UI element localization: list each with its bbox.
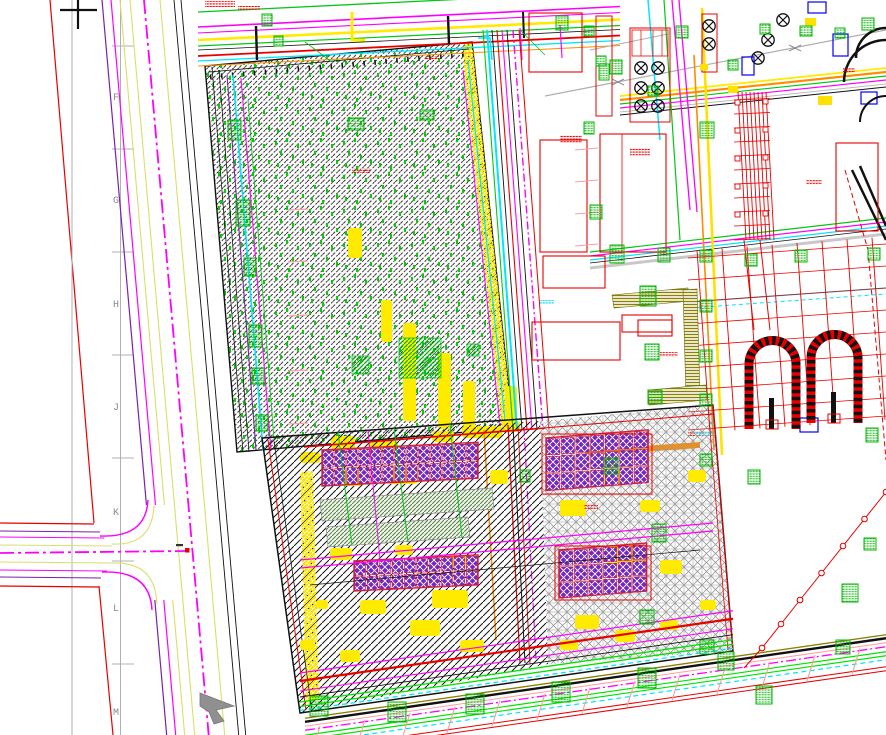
grid-line-h xyxy=(688,266,886,280)
road-corner-curve xyxy=(100,500,148,536)
module-cell xyxy=(443,445,453,461)
grid-letter-l: L xyxy=(113,604,119,615)
annotation-text-red xyxy=(584,505,598,509)
rack-column xyxy=(763,211,768,216)
module-cell xyxy=(634,467,647,483)
module-cell xyxy=(547,439,560,455)
fence-circle-marker xyxy=(778,621,784,627)
equipment-tag xyxy=(556,16,568,30)
cad-drawing[interactable]: F G H J K L M xyxy=(0,0,886,735)
equipment-tag xyxy=(640,286,656,306)
yellow-blob xyxy=(340,650,360,662)
module-cell xyxy=(574,550,587,564)
module-cell xyxy=(431,463,441,479)
micro-annotation xyxy=(176,544,183,546)
equipment-tag xyxy=(835,28,845,38)
equipment-tag xyxy=(866,428,878,442)
module-cell xyxy=(371,448,381,464)
module-cell xyxy=(589,564,602,578)
annotation-text-red xyxy=(806,180,822,185)
yellow-blob xyxy=(432,590,468,608)
module-cell xyxy=(429,573,440,586)
equipment-tag xyxy=(700,640,714,654)
pipe-rack-line xyxy=(750,92,758,240)
blue-junction-box xyxy=(808,2,826,13)
module-cell xyxy=(561,455,574,471)
grid-letter-j: J xyxy=(113,403,119,414)
building-outline xyxy=(540,140,587,252)
tank-cell-grid xyxy=(632,30,668,56)
yellow-blob xyxy=(460,640,484,652)
module-cell xyxy=(574,566,587,580)
equipment-tag xyxy=(700,394,712,406)
yellow-box xyxy=(700,64,708,70)
module-cell xyxy=(442,557,453,570)
side-road-edge xyxy=(0,562,115,563)
arrow-cursor xyxy=(200,693,234,724)
yellow-pipe-elbow xyxy=(352,12,365,40)
module-cell xyxy=(380,561,391,574)
road-edge xyxy=(164,600,176,735)
equipment-tag xyxy=(868,248,880,260)
pipe-line-top xyxy=(198,30,620,51)
side-road-edge xyxy=(0,570,107,571)
fence-circle-marker xyxy=(819,570,825,576)
module-cell xyxy=(620,450,633,466)
module-cell xyxy=(547,474,560,490)
yellow-blob xyxy=(660,560,682,574)
equipment-tag xyxy=(700,250,712,262)
yellow-blob xyxy=(360,600,386,614)
building-outline xyxy=(638,320,672,336)
equipment-tag xyxy=(236,200,250,226)
module-cell xyxy=(359,449,369,465)
furnace-1-stem xyxy=(769,398,774,429)
side-road-edge xyxy=(0,586,99,587)
module-cell xyxy=(455,444,465,460)
module-cell xyxy=(380,576,391,589)
module-cell xyxy=(455,462,465,478)
tank-cross xyxy=(637,64,646,73)
module-cell xyxy=(605,434,618,450)
pipe-rack-line xyxy=(746,92,754,240)
rack-column xyxy=(763,127,768,132)
equipment-tag xyxy=(676,26,688,38)
module-cell xyxy=(604,579,617,593)
equipment-tag xyxy=(584,26,594,36)
pipe-rack-line xyxy=(758,92,766,240)
grid-letter-m: M xyxy=(113,708,119,719)
module-cell xyxy=(620,468,633,484)
cyan-pipe-dashed xyxy=(690,294,886,308)
annotation-text-red xyxy=(205,1,235,7)
pipe-rack-line xyxy=(738,92,746,240)
module-cell xyxy=(560,583,573,597)
pipe-rack-rung xyxy=(734,225,770,227)
equipment-tag xyxy=(652,524,666,542)
road-centerline xyxy=(144,0,209,735)
rack-column xyxy=(763,155,768,160)
module-cell xyxy=(442,572,453,585)
grid-letter-k: K xyxy=(113,508,119,519)
equipment-tag xyxy=(256,415,268,431)
module-cell xyxy=(392,560,403,573)
module-cell xyxy=(367,576,378,589)
road-edge xyxy=(155,600,167,735)
module-cell xyxy=(417,559,428,572)
yellow-blob xyxy=(330,548,352,560)
yellow-blob xyxy=(348,228,362,258)
yellow-blob xyxy=(316,600,328,609)
grid-letter-h: H xyxy=(113,300,119,311)
equipment-tag xyxy=(760,24,770,34)
module-cell xyxy=(604,547,617,561)
rack-column xyxy=(735,156,740,161)
cad-viewport[interactable]: F G H J K L M xyxy=(0,0,886,735)
module-cell xyxy=(618,578,631,592)
furnace-2-stem xyxy=(831,392,836,423)
annotation-text-red xyxy=(390,480,404,484)
equipment-tag xyxy=(700,122,714,138)
rack-column xyxy=(735,184,740,189)
east-plant-area xyxy=(529,0,886,460)
annotation-text-red xyxy=(630,148,650,156)
side-road-edge xyxy=(0,577,101,578)
tank-cross xyxy=(764,36,773,45)
equipment-tag xyxy=(864,538,876,550)
annotation-text-red xyxy=(425,56,439,60)
module-cell xyxy=(407,465,417,481)
equipment-tag xyxy=(645,344,659,360)
crosshair-cursor xyxy=(60,0,97,29)
yellow-blob xyxy=(300,640,314,650)
black-stub xyxy=(256,26,257,60)
fence-circle-marker xyxy=(840,543,846,549)
module-cell xyxy=(591,435,604,451)
yellow-blob xyxy=(575,615,599,629)
road-edge xyxy=(130,0,195,735)
yellow-blob xyxy=(381,300,392,342)
module-cell xyxy=(359,467,369,483)
equipment-tag xyxy=(252,368,264,384)
tank-cross xyxy=(705,22,714,31)
module-cell xyxy=(547,456,560,472)
annotation-text-red xyxy=(352,168,370,173)
building-outline xyxy=(622,315,672,332)
module-cell xyxy=(589,548,602,562)
yellow-blob xyxy=(700,600,716,610)
equipment-tag xyxy=(718,652,734,670)
pipe-rack-line xyxy=(754,92,762,240)
module-cell xyxy=(634,449,647,465)
grid-line-v xyxy=(722,248,735,430)
module-cell xyxy=(404,559,415,572)
equipment-tag xyxy=(756,686,772,704)
building-outline xyxy=(836,143,878,231)
module-cell xyxy=(560,551,573,565)
equipment-tag xyxy=(648,86,658,96)
module-cell xyxy=(633,561,646,575)
equipment-tag xyxy=(638,668,656,688)
equipment-tag xyxy=(800,26,812,36)
yellow-box xyxy=(805,18,816,26)
equipment-tag xyxy=(842,584,858,602)
north-parcel-hatch xyxy=(205,42,520,463)
grid-line-v xyxy=(872,238,885,420)
road-edge xyxy=(102,0,146,505)
equipment-tag xyxy=(596,56,606,66)
module-cell xyxy=(467,444,477,460)
equipment-tag xyxy=(388,702,406,722)
tank-cross xyxy=(779,16,788,25)
grid-line-h xyxy=(688,288,886,302)
black-pipe-arc xyxy=(860,96,886,122)
module-cell xyxy=(383,466,393,482)
equipment-tag xyxy=(274,36,283,46)
equipment-tag xyxy=(648,390,662,404)
module-cell xyxy=(323,451,333,467)
side-road-centerline xyxy=(0,551,186,553)
module-cell xyxy=(560,567,573,581)
module-cell xyxy=(355,562,366,575)
centerline-end-marker xyxy=(185,548,190,553)
module-cell xyxy=(633,577,646,591)
yellow-blob xyxy=(640,500,660,512)
equipment-tag xyxy=(745,254,757,266)
cyan-riser xyxy=(648,0,660,140)
grid-line-h xyxy=(688,310,886,324)
green-square xyxy=(467,344,479,356)
module-cell xyxy=(620,433,633,449)
fence-circle-marker xyxy=(862,516,868,522)
equipment-tag xyxy=(228,120,241,140)
module-cell xyxy=(574,582,587,596)
module-cell xyxy=(576,436,589,452)
side-road-edge xyxy=(0,545,112,546)
module-cell xyxy=(431,445,441,461)
module-cell xyxy=(417,574,428,587)
equipment-tag xyxy=(836,640,850,654)
module-cell xyxy=(633,545,646,559)
tank-cross xyxy=(654,64,663,73)
rack-column xyxy=(763,99,768,104)
rack-column xyxy=(763,183,768,188)
tank-cross xyxy=(705,40,714,49)
rack-column xyxy=(735,128,740,133)
module-cell xyxy=(466,556,477,569)
module-cell xyxy=(443,463,453,479)
yellow-box xyxy=(818,96,832,105)
equipment-tag xyxy=(244,258,256,276)
module-cell xyxy=(618,546,631,560)
grid-letter-f: F xyxy=(113,93,119,104)
module-cell xyxy=(467,462,477,478)
side-road-edge xyxy=(0,531,100,532)
fence-circle-marker xyxy=(797,597,803,603)
equipment-tag xyxy=(584,122,594,134)
equipment-tag xyxy=(520,470,530,482)
property-line-red xyxy=(99,586,113,735)
equipment-tag xyxy=(700,454,712,466)
module-cell xyxy=(335,450,345,466)
equipment-tag xyxy=(700,300,712,312)
equipment-tag xyxy=(310,696,328,716)
module-cell xyxy=(454,557,465,570)
building-outline xyxy=(543,256,605,288)
equipment-tag xyxy=(640,610,654,624)
pipe-rack-line xyxy=(762,92,770,240)
module-cell xyxy=(604,563,617,577)
yellow-box xyxy=(728,86,738,93)
module-cell xyxy=(407,447,417,463)
annotation-text-red xyxy=(843,68,855,72)
pipe-rack-line xyxy=(766,92,774,240)
module-cell xyxy=(367,561,378,574)
pipe-rack-line xyxy=(742,92,750,240)
olive-band xyxy=(683,289,700,397)
module-cell xyxy=(589,580,602,594)
module-cell xyxy=(419,464,429,480)
module-cell xyxy=(454,572,465,585)
module-cell xyxy=(383,448,393,464)
module-cell xyxy=(419,446,429,462)
module-cell xyxy=(429,558,440,571)
rack-column xyxy=(735,100,740,105)
equipment-tag xyxy=(466,694,484,714)
yellow-blob xyxy=(490,470,508,484)
module-cell xyxy=(561,473,574,489)
equipment-tag xyxy=(262,14,272,26)
module-cell xyxy=(576,454,589,470)
equipment-tag xyxy=(604,458,618,474)
yellow-blob xyxy=(410,620,440,636)
equipment-tag xyxy=(748,470,760,484)
side-road-edge xyxy=(0,523,94,524)
equipment-tag xyxy=(658,248,670,262)
equipment-tag xyxy=(862,18,874,30)
equipment-tag xyxy=(420,110,434,120)
equipment-tag xyxy=(795,250,807,262)
annotation-text-cyan xyxy=(540,300,554,304)
yellow-blob xyxy=(560,500,586,516)
green-square xyxy=(352,356,369,374)
module-cell xyxy=(618,562,631,576)
annotation-text-red xyxy=(238,6,260,11)
equipment-tag xyxy=(249,325,262,347)
fence-circle-marker xyxy=(759,645,765,651)
module-cell xyxy=(576,471,589,487)
pipe-line-east xyxy=(590,229,886,263)
bowtie-symbol xyxy=(612,79,624,85)
green-square xyxy=(424,359,439,374)
equipment-tag xyxy=(700,350,712,362)
equipment-tag xyxy=(590,205,602,219)
pipe-line-mid xyxy=(519,30,549,430)
equipment-tag xyxy=(610,60,622,74)
module-cell xyxy=(355,577,366,590)
tank-cross xyxy=(637,84,646,93)
equipment-tag xyxy=(728,60,738,70)
yellow-blob xyxy=(688,470,706,482)
equipment-tag xyxy=(610,245,624,263)
pipe-rack-line xyxy=(760,240,770,330)
grid-letter-g: G xyxy=(113,196,119,207)
equipment-tag xyxy=(348,118,364,130)
annotation-text-red xyxy=(660,352,678,357)
module-cell xyxy=(347,450,357,466)
road-corner-curve xyxy=(102,572,152,610)
pipe-rack-rung xyxy=(734,169,770,171)
module-cell xyxy=(466,571,477,584)
module-cell xyxy=(561,438,574,454)
building-outline xyxy=(532,322,620,360)
arrow-pointer xyxy=(200,693,234,724)
rack-column xyxy=(735,212,740,217)
road-edge xyxy=(173,600,185,735)
module-cell xyxy=(591,453,604,469)
module-cell xyxy=(323,469,333,485)
module-cell xyxy=(347,468,357,484)
equipment-tag xyxy=(552,682,570,702)
annotation-text-red xyxy=(560,135,582,143)
side-road-edge xyxy=(0,537,104,538)
module-cell xyxy=(591,470,604,486)
black-stub xyxy=(448,16,449,44)
